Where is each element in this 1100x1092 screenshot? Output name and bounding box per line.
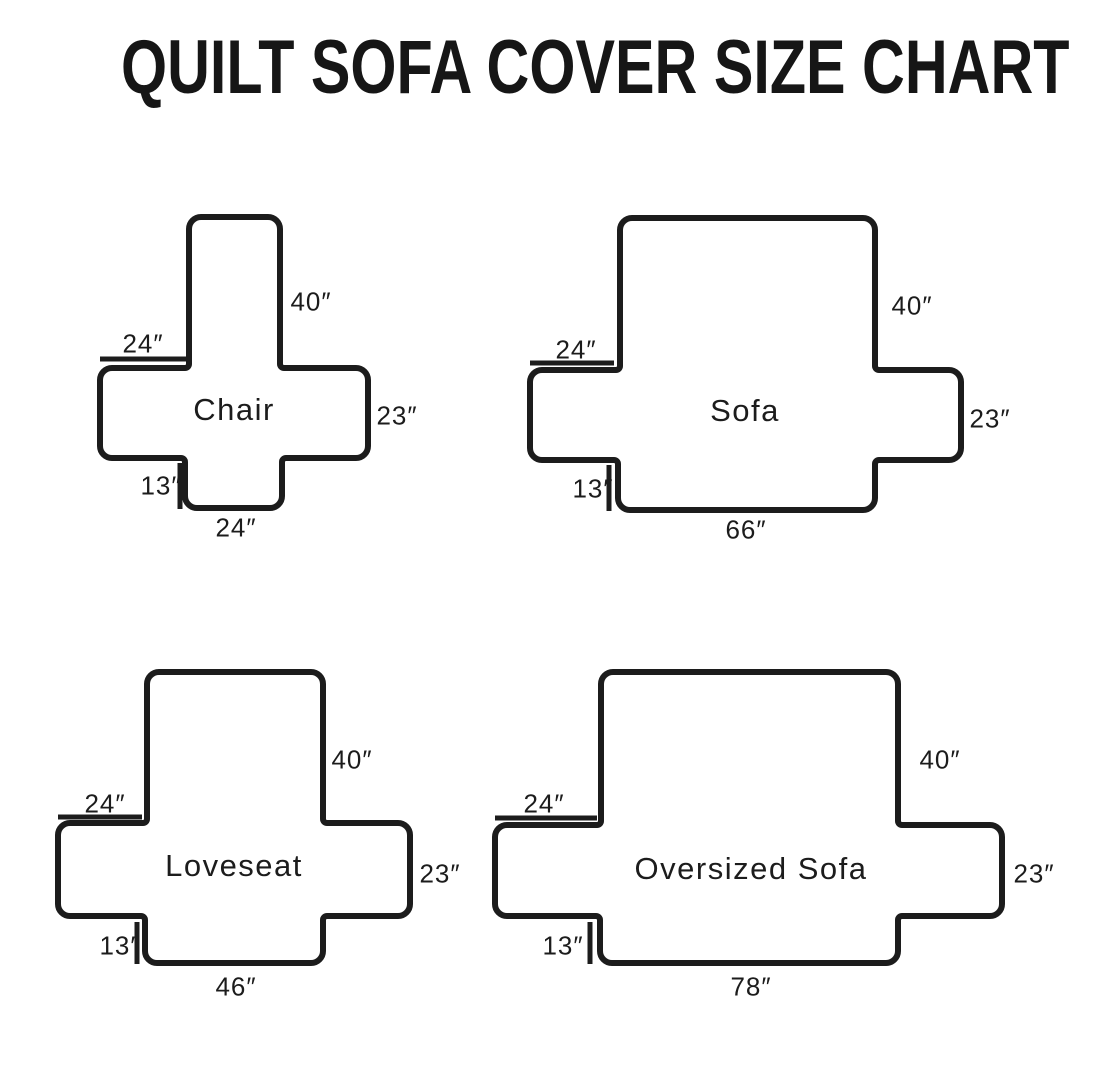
sofa-name-label: Sofa — [710, 393, 780, 429]
sofa-arm-width-label: 24″ — [555, 335, 596, 366]
chair-arm-width-label: 24″ — [122, 329, 163, 360]
cover-outlines-graphic — [0, 0, 1100, 1092]
chair-outline — [100, 217, 368, 508]
loveseat-arm-width-label: 24″ — [84, 789, 125, 820]
sofa-side-height-label: 23″ — [969, 404, 1010, 435]
oversized-sofa-back-height-label: 40″ — [919, 745, 960, 776]
loveseat-side-height-label: 23″ — [419, 859, 460, 890]
chair-skirt-height-label: 13″ — [140, 471, 181, 502]
size-chart-page: QUILT SOFA COVER SIZE CHART Chair 40″ 24… — [0, 0, 1100, 1092]
oversized-sofa-name-label: Oversized Sofa — [635, 851, 868, 887]
oversized-sofa-side-height-label: 23″ — [1013, 859, 1054, 890]
chair-back-height-label: 40″ — [290, 287, 331, 318]
sofa-seat-width-label: 66″ — [725, 515, 766, 546]
sofa-back-height-label: 40″ — [891, 291, 932, 322]
loveseat-skirt-height-label: 13″ — [99, 931, 140, 962]
oversized-sofa-seat-width-label: 78″ — [730, 972, 771, 1003]
oversized-sofa-skirt-height-label: 13″ — [542, 931, 583, 962]
loveseat-seat-width-label: 46″ — [215, 972, 256, 1003]
sofa-skirt-height-label: 13″ — [572, 474, 613, 505]
loveseat-back-height-label: 40″ — [331, 745, 372, 776]
loveseat-name-label: Loveseat — [165, 848, 303, 884]
chair-name-label: Chair — [193, 392, 275, 428]
oversized-sofa-arm-width-label: 24″ — [523, 789, 564, 820]
chair-side-height-label: 23″ — [376, 401, 417, 432]
chair-seat-width-label: 24″ — [215, 513, 256, 544]
